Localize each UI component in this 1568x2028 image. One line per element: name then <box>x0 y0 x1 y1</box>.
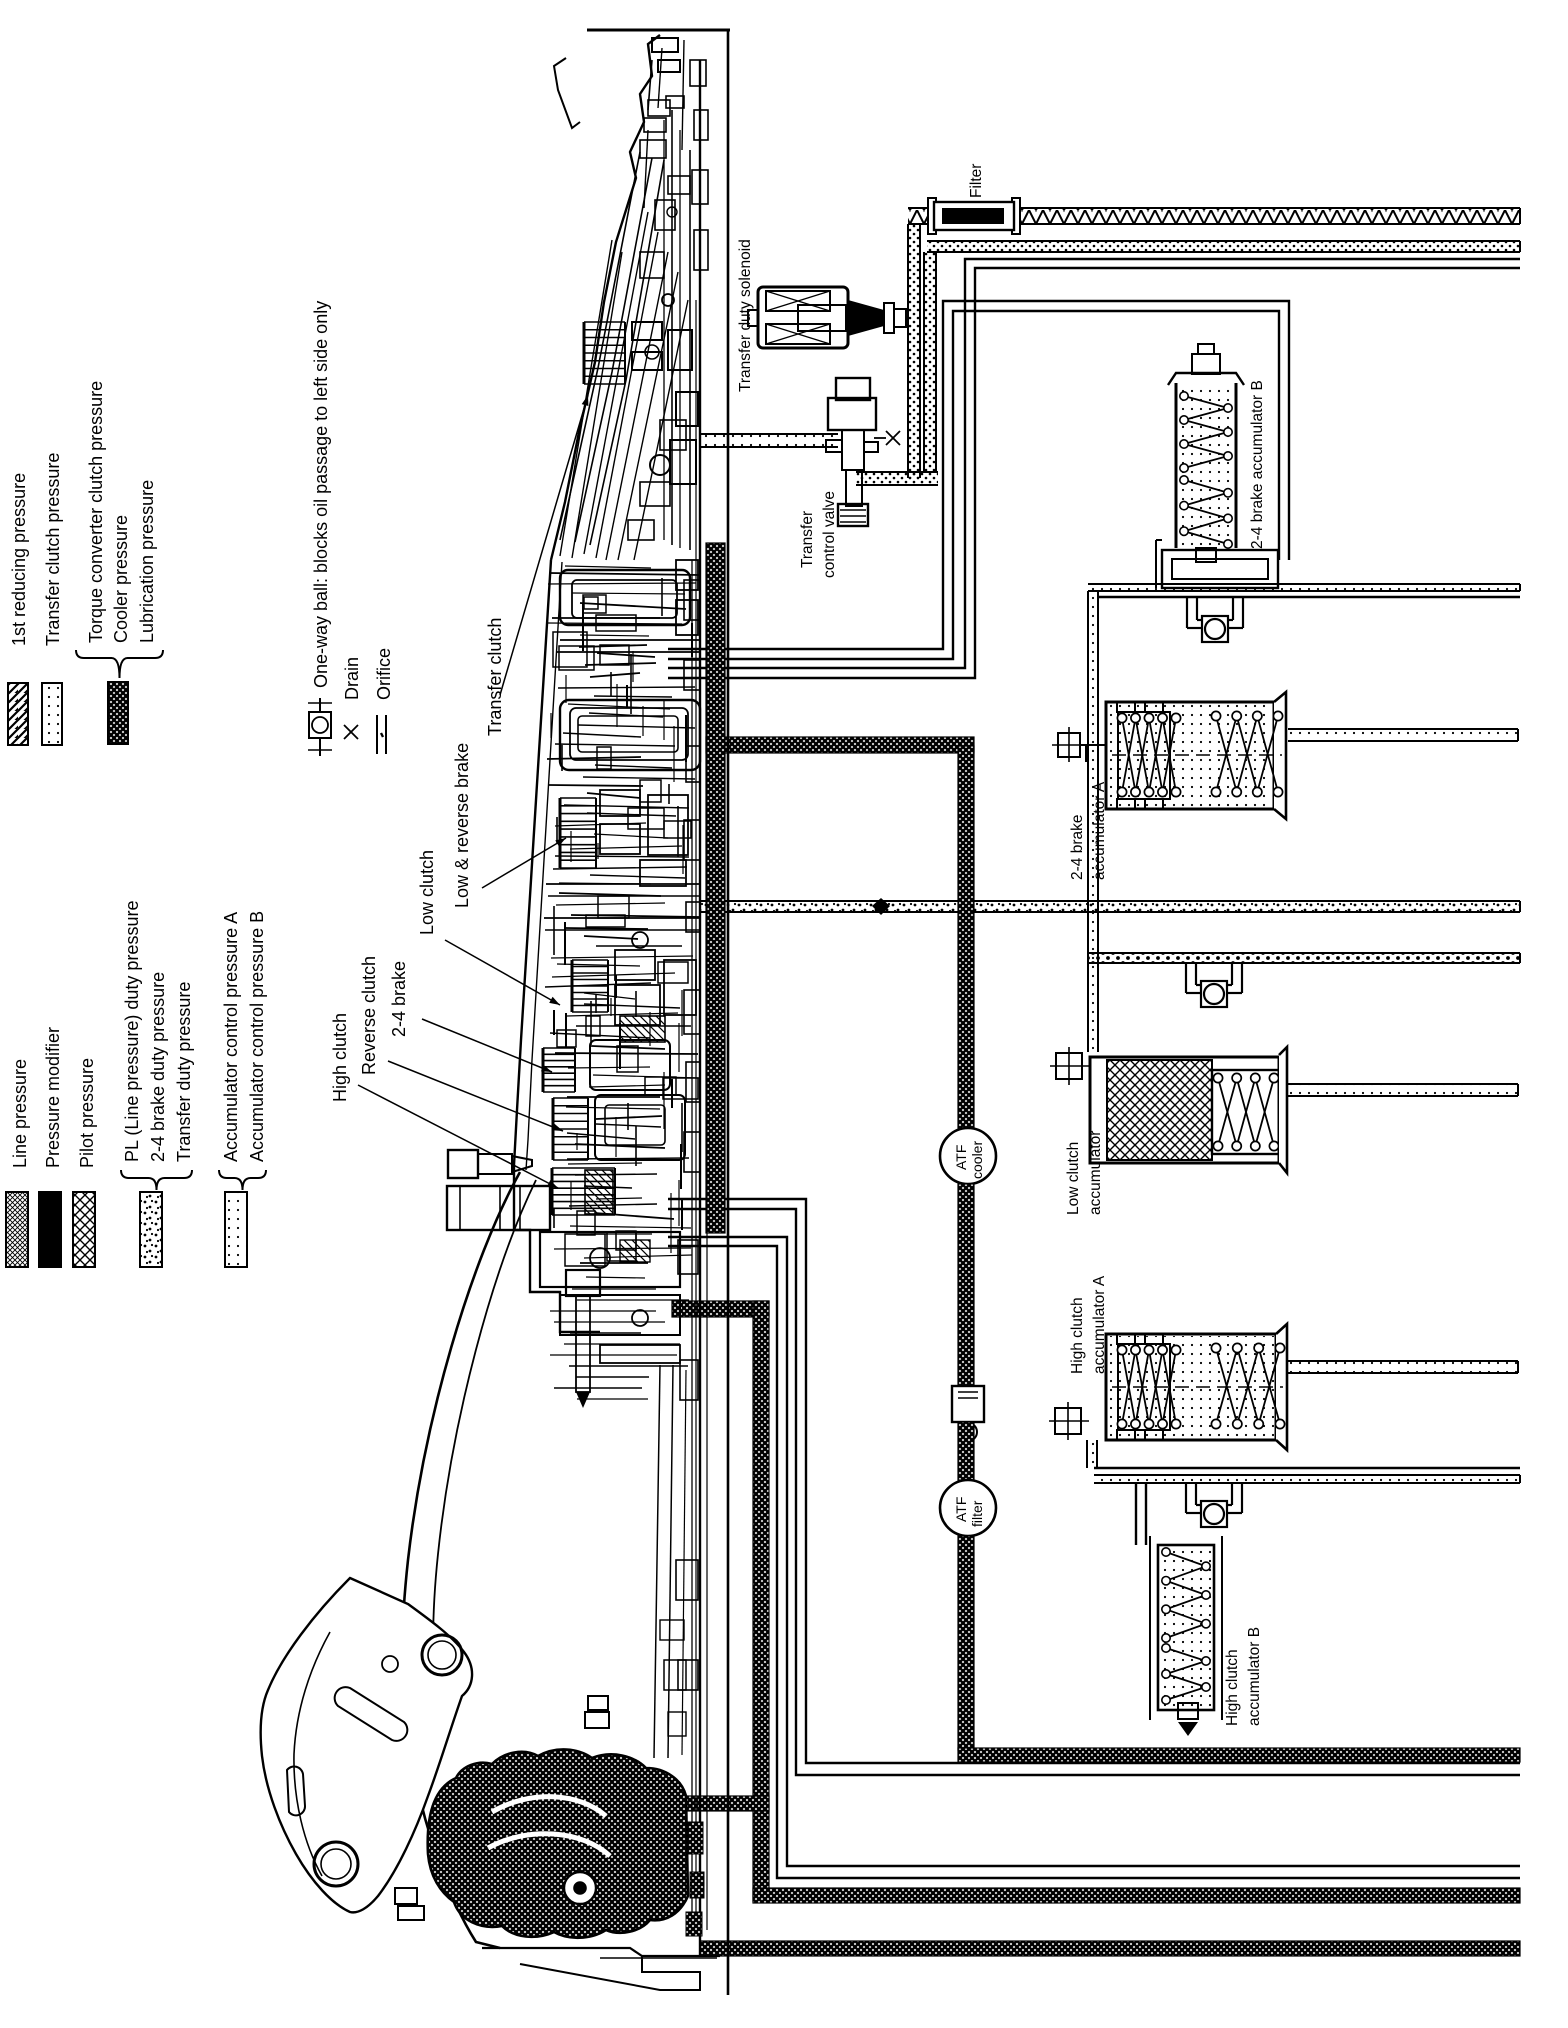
svg-text:accumulator: accumulator <box>1087 1131 1104 1215</box>
svg-text:Pilot pressure: Pilot pressure <box>77 1058 97 1168</box>
svg-text:2-4 brake: 2-4 brake <box>1069 815 1086 880</box>
svg-text:filter: filter <box>969 1500 985 1527</box>
svg-text:2-4 brake accumulator B: 2-4 brake accumulator B <box>1249 380 1266 549</box>
svg-text:Pressure modifier: Pressure modifier <box>43 1027 63 1168</box>
svg-text:accumulator A: accumulator A <box>1091 1275 1108 1374</box>
svg-text:Reverse clutch: Reverse clutch <box>359 956 379 1075</box>
svg-text:cooler: cooler <box>969 1141 985 1179</box>
svg-text:accumulator A: accumulator A <box>1091 781 1108 880</box>
svg-text:control valve: control valve <box>821 491 838 578</box>
svg-text:ATF: ATF <box>953 1497 969 1522</box>
svg-text:ATF: ATF <box>953 1145 969 1170</box>
svg-text:Lubrication pressure: Lubrication pressure <box>137 480 157 643</box>
svg-text:High clutch: High clutch <box>330 1013 350 1102</box>
svg-text:PL (Line pressure) duty pressu: PL (Line pressure) duty pressure <box>122 901 142 1162</box>
svg-text:Low clutch: Low clutch <box>417 850 437 935</box>
svg-text:Cooler pressure: Cooler pressure <box>111 515 131 643</box>
svg-text:Filter: Filter <box>968 164 985 198</box>
svg-text:Transfer clutch: Transfer clutch <box>485 618 505 736</box>
svg-text:accumulator B: accumulator B <box>1246 1627 1263 1726</box>
svg-text:High clutch: High clutch <box>1069 1297 1086 1374</box>
svg-text:2-4 brake duty pressure: 2-4 brake duty pressure <box>148 972 168 1162</box>
svg-text:Transfer duty solenoid: Transfer duty solenoid <box>737 239 754 392</box>
svg-text:Line pressure: Line pressure <box>10 1059 30 1168</box>
svg-text:Drain: Drain <box>342 657 362 700</box>
svg-text:Accumulator control pressure B: Accumulator control pressure B <box>247 911 267 1162</box>
svg-text:Transfer duty pressure: Transfer duty pressure <box>174 982 194 1162</box>
svg-text:Accumulator control pressure A: Accumulator control pressure A <box>221 912 241 1162</box>
svg-text:Torque converter clutch pressu: Torque converter clutch pressure <box>86 381 106 643</box>
svg-text:Transfer: Transfer <box>799 511 816 568</box>
svg-text:Transfer clutch pressure: Transfer clutch pressure <box>43 453 63 646</box>
svg-text:Orifice: Orifice <box>374 648 394 700</box>
svg-text:2-4 brake: 2-4 brake <box>389 961 409 1037</box>
svg-text:Low clutch: Low clutch <box>1065 1142 1082 1215</box>
svg-text:Low & reverse brake: Low & reverse brake <box>452 743 472 908</box>
svg-text:One-way ball: blocks oil passa: One-way ball: blocks oil passage to left… <box>311 301 331 688</box>
svg-text:1st reducing pressure: 1st reducing pressure <box>9 473 29 646</box>
svg-text:High clutch: High clutch <box>1224 1649 1241 1726</box>
